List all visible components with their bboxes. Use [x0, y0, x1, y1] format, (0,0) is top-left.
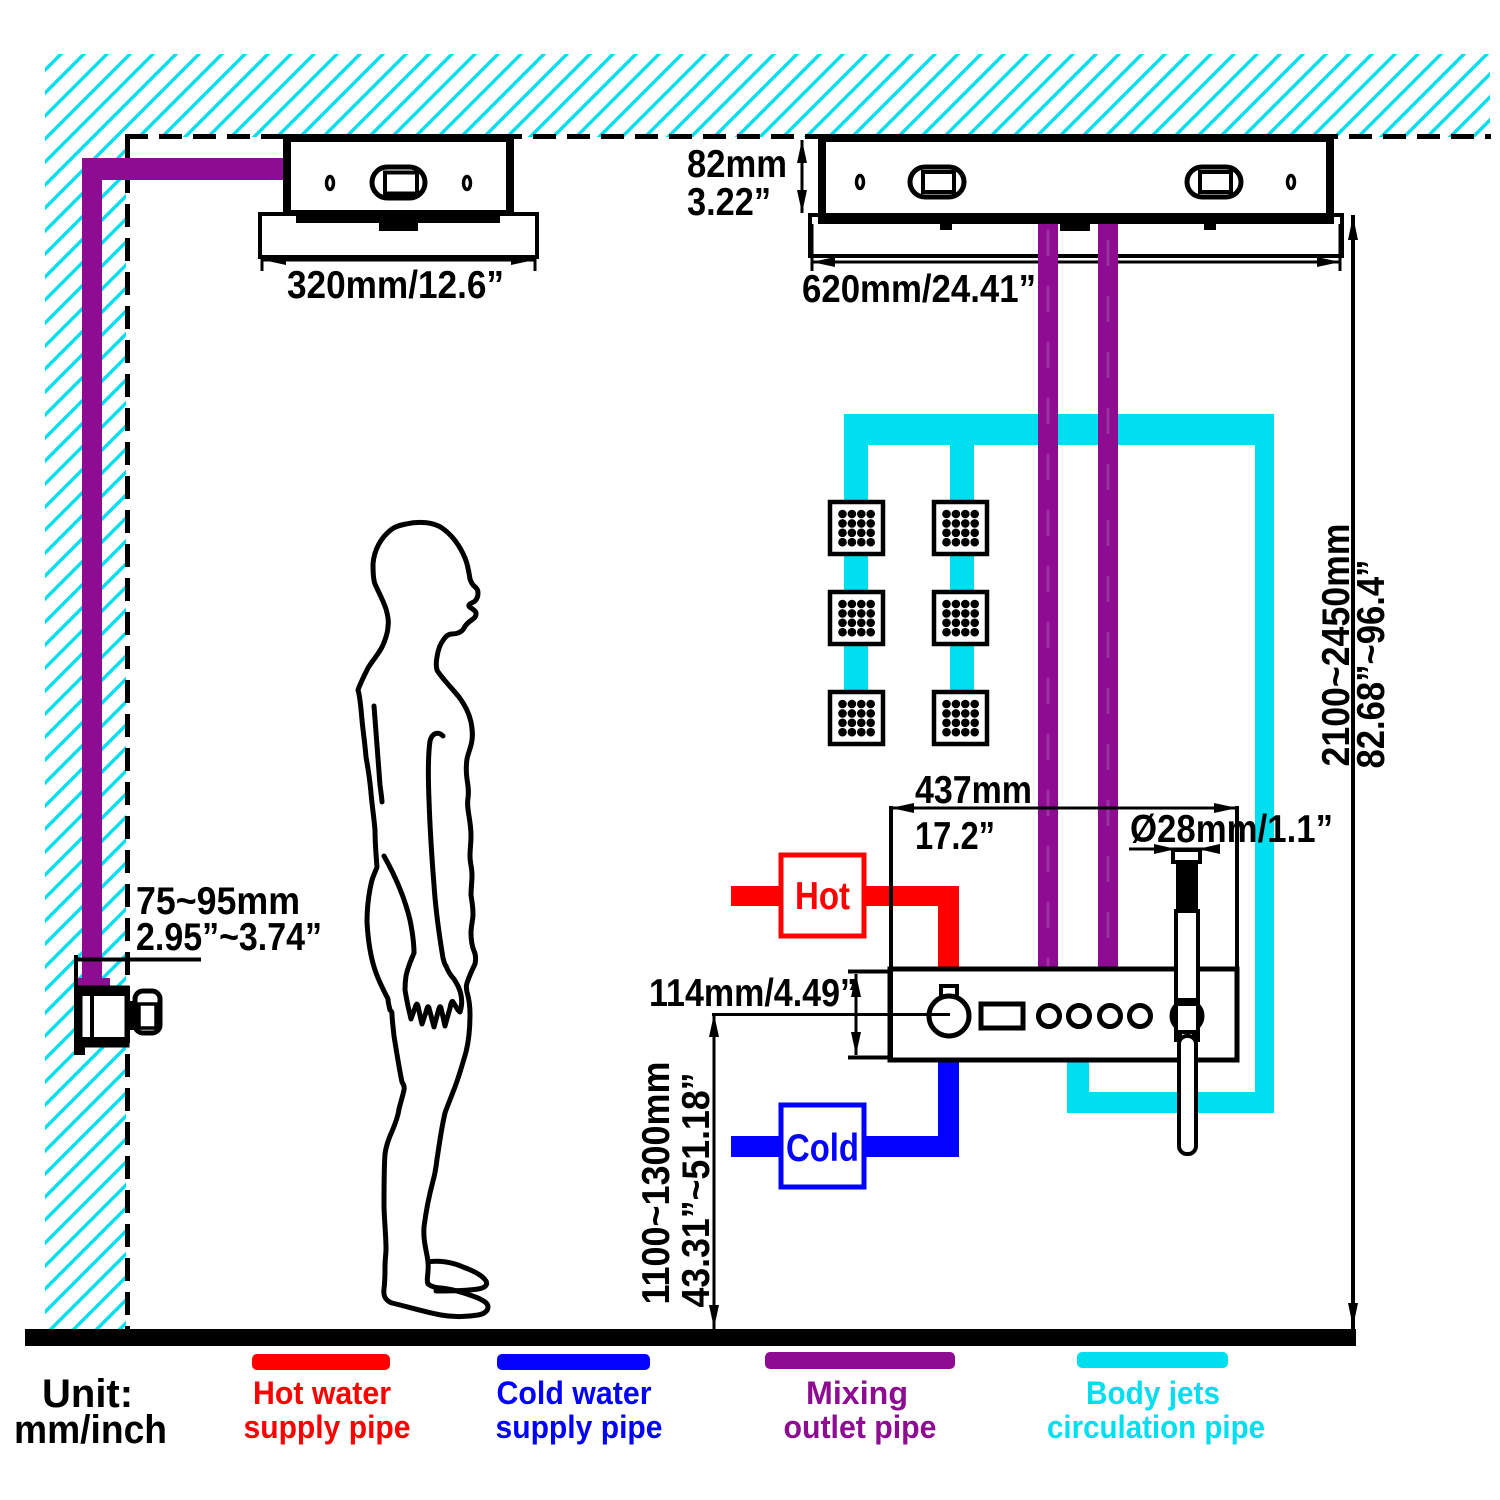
svg-text:1100~1300mm: 1100~1300mm [635, 1062, 678, 1305]
svg-text:Body jets: Body jets [1086, 1375, 1220, 1411]
svg-text:mm/inch: mm/inch [14, 1408, 167, 1452]
svg-text:3.22”: 3.22” [687, 181, 771, 224]
svg-text:Mixing: Mixing [806, 1375, 908, 1411]
svg-text:circulation pipe: circulation pipe [1047, 1409, 1265, 1445]
svg-text:2.95”~3.74”: 2.95”~3.74” [136, 916, 322, 959]
svg-text:437mm: 437mm [915, 769, 1032, 812]
svg-text:17.2”: 17.2” [915, 815, 995, 858]
svg-text:supply pipe: supply pipe [244, 1409, 411, 1445]
svg-text:320mm/12.6”: 320mm/12.6” [287, 264, 504, 307]
svg-text:43.31”~51.18”: 43.31”~51.18” [675, 1073, 718, 1308]
svg-text:supply pipe: supply pipe [496, 1409, 663, 1445]
svg-text:620mm/24.41”: 620mm/24.41” [802, 268, 1036, 311]
svg-text:Hot water: Hot water [253, 1375, 391, 1411]
svg-text:114mm/4.49”: 114mm/4.49” [649, 972, 857, 1015]
svg-text:Hot: Hot [795, 875, 850, 918]
svg-text:Ø28mm/1.1”: Ø28mm/1.1” [1130, 808, 1333, 851]
svg-text:82.68”~96.4”: 82.68”~96.4” [1350, 560, 1393, 769]
svg-text:Cold: Cold [786, 1127, 859, 1170]
svg-text:Cold water: Cold water [497, 1375, 652, 1411]
svg-text:outlet pipe: outlet pipe [784, 1409, 937, 1445]
svg-text:82mm: 82mm [687, 143, 787, 186]
